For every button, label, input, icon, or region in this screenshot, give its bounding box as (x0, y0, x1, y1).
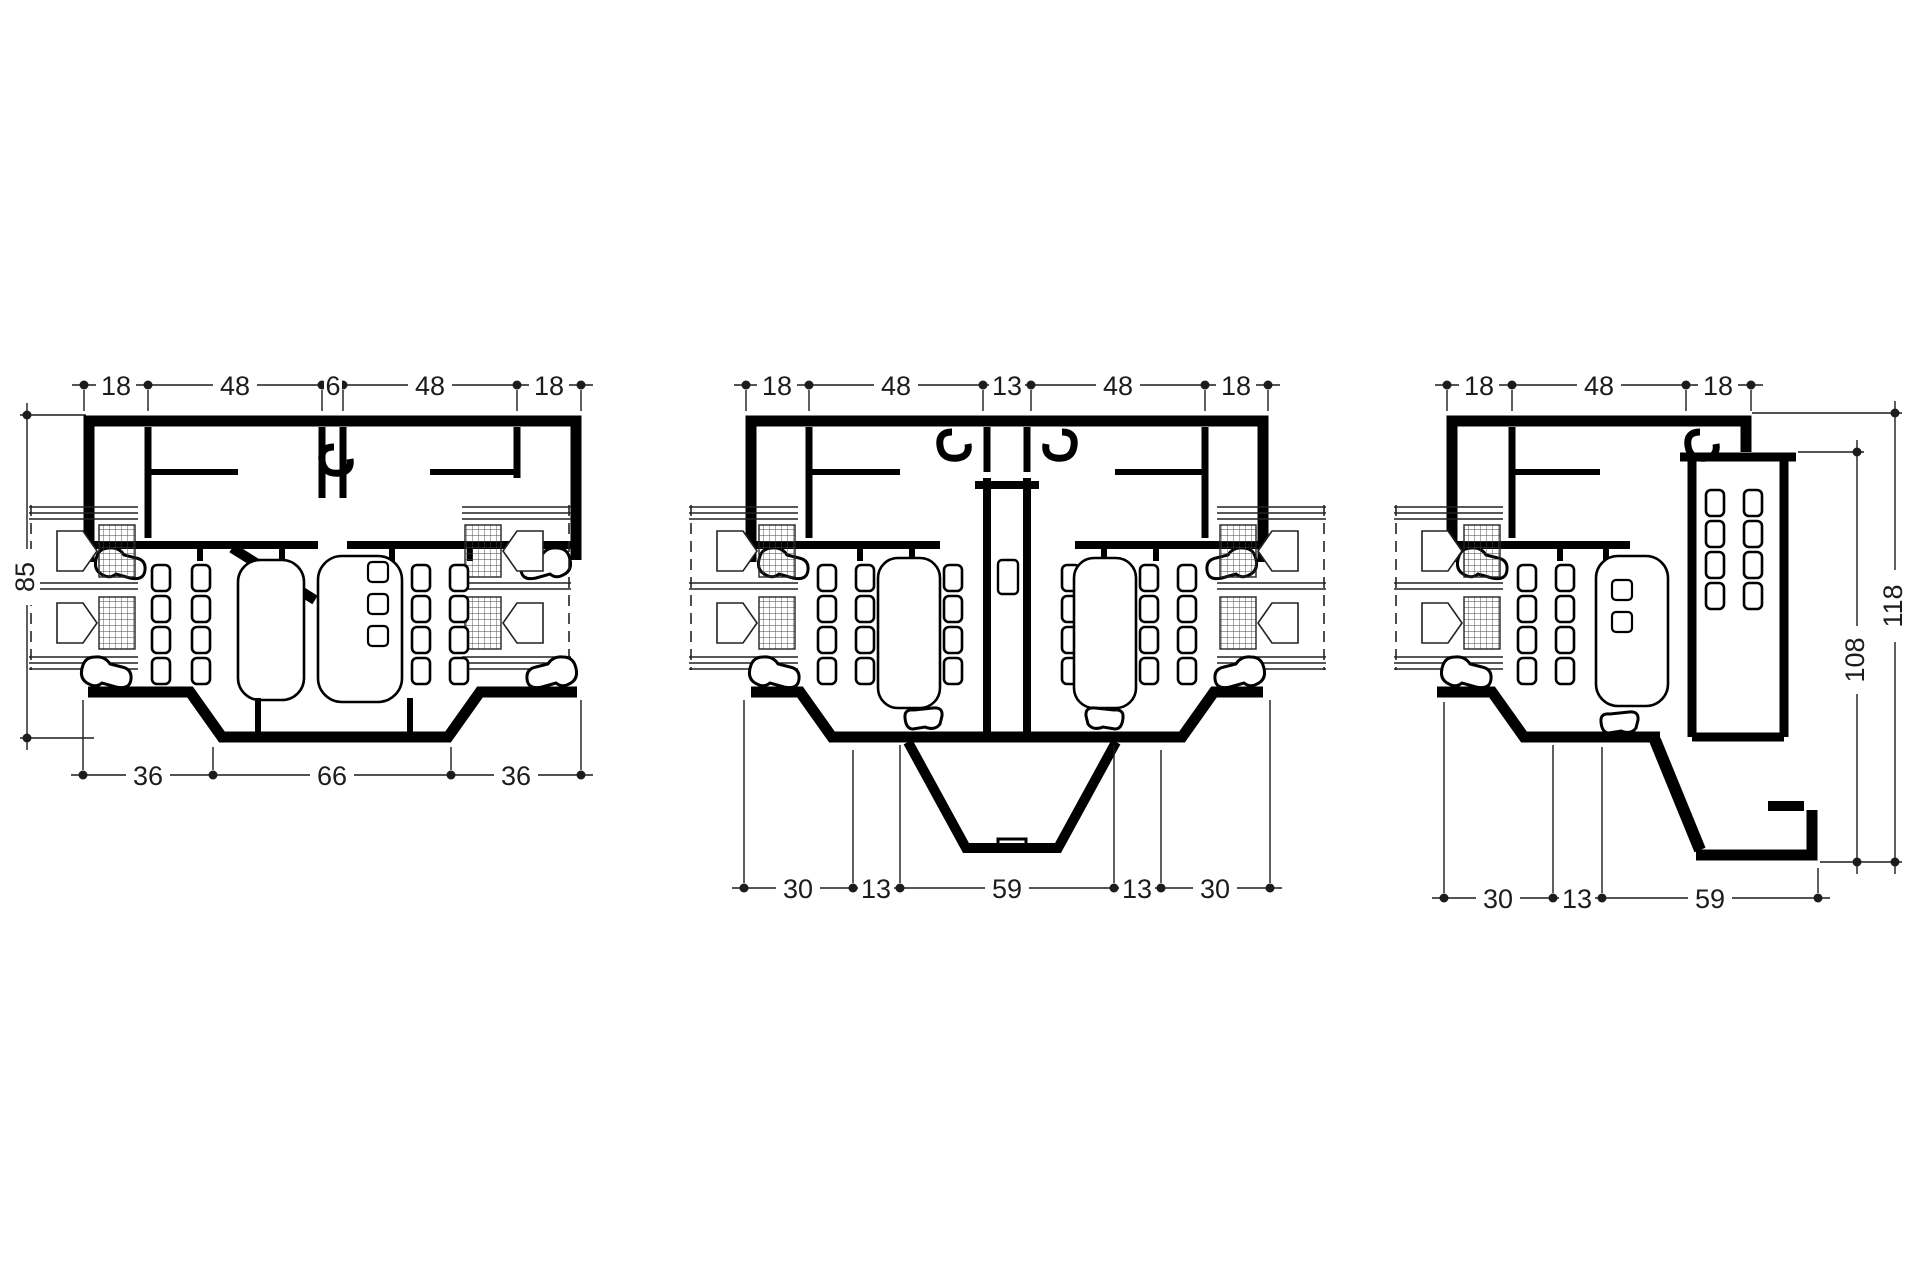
thermal-break-ladders (1518, 565, 1574, 684)
dim-label: 36 (133, 761, 163, 791)
vent-column (1680, 457, 1796, 737)
technical-drawing-canvas: 18 48 6 48 18 85 36 66 36 (0, 0, 1920, 1280)
dim-label: 18 (762, 371, 792, 401)
section-middle-profile (689, 421, 1326, 848)
section-right-top-dimension: 18 48 18 (1435, 370, 1763, 411)
dim-label: 59 (992, 874, 1022, 904)
section-left-drawing: 18 48 6 48 18 85 36 66 36 (10, 370, 593, 791)
section-left-top-dimension: 18 48 6 48 18 (72, 370, 593, 411)
sill-clip-gasket (905, 708, 942, 729)
dim-label: 13 (1122, 874, 1152, 904)
sill-gasket-boot (749, 657, 799, 688)
dim-label: 18 (534, 371, 564, 401)
section-right-profile (1394, 421, 1812, 855)
dim-label: 13 (1562, 884, 1592, 914)
section-left-bottom-dimension: 36 66 36 (71, 700, 593, 791)
dim-label: 18 (1221, 371, 1251, 401)
section-middle-drawing: 18 48 13 48 18 30 13 59 13 30 (689, 370, 1326, 904)
dim-label: 30 (1483, 884, 1513, 914)
section-middle-top-dimension: 18 48 13 48 18 (734, 370, 1280, 411)
sill-gasket-boot (81, 657, 131, 688)
dim-label: 48 (881, 371, 911, 401)
dim-label: 13 (992, 371, 1022, 401)
dim-label: 30 (1200, 874, 1230, 904)
frame-head (751, 421, 1263, 579)
dim-label: 85 (10, 562, 40, 592)
thermal-break-ladders (152, 565, 468, 684)
glazing-unit-right (462, 505, 571, 670)
glazing-unit-left (689, 505, 798, 670)
sill-gasket-boot (1441, 657, 1491, 688)
dim-label: 108 (1840, 637, 1870, 682)
dim-label: 18 (101, 371, 131, 401)
dim-label: 118 (1878, 584, 1908, 627)
dim-label: 48 (220, 371, 250, 401)
dim-label: 48 (415, 371, 445, 401)
section-middle-bottom-dimension: 30 13 59 13 30 (732, 700, 1282, 904)
glazing-unit-right (1217, 505, 1326, 670)
dim-label: 59 (1695, 884, 1725, 914)
center-gasket-hook (1046, 432, 1075, 458)
dim-label: 48 (1584, 371, 1614, 401)
dim-label: 18 (1703, 371, 1733, 401)
dim-label: 30 (783, 874, 813, 904)
dim-label: 13 (861, 874, 891, 904)
dim-label: 6 (325, 371, 340, 401)
page: 18 48 6 48 18 85 36 66 36 (0, 0, 1920, 1280)
sill-clip-gasket (1601, 712, 1638, 733)
section-left-profile (29, 421, 577, 737)
center-gasket-hook (940, 432, 969, 458)
dim-label: 36 (501, 761, 531, 791)
sill-gasket-boot (527, 657, 577, 688)
section-right-drawing: 18 48 18 108 118 30 13 5 (1394, 370, 1908, 914)
dim-label: 66 (317, 761, 347, 791)
section-left-side-dimension: 85 (10, 403, 94, 750)
sill-clip-gasket (1086, 708, 1123, 729)
dim-label: 18 (1464, 371, 1494, 401)
sill-with-drain (749, 657, 1264, 848)
sash-profiles (1596, 556, 1668, 706)
center-mullion (975, 478, 1039, 735)
sill-gasket-boot (1215, 657, 1265, 688)
sash-profiles (238, 556, 402, 702)
dim-label: 48 (1103, 371, 1133, 401)
